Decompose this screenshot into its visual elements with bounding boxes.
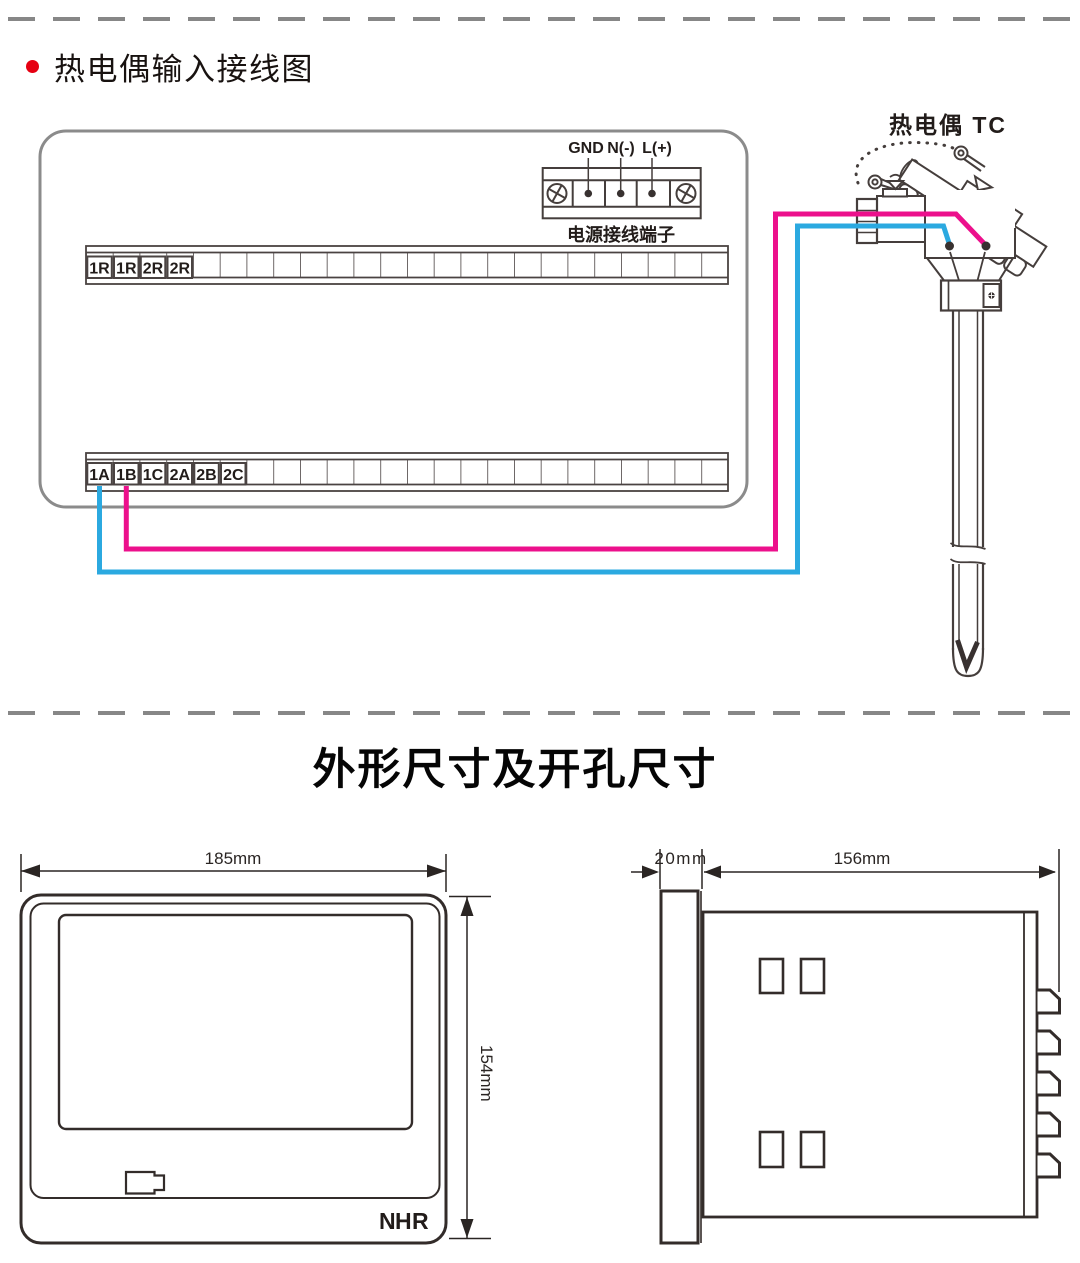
mounting-claws	[1038, 990, 1060, 1177]
nhr-logo: N H R	[379, 1208, 429, 1234]
upper-strip-label: 1R	[89, 261, 110, 278]
logo-letter-h: H	[395, 1208, 411, 1234]
side-view-drawing: 20mm 156mm	[600, 840, 1080, 1263]
mounting-claw	[1038, 1113, 1060, 1136]
device-body	[703, 912, 1037, 1217]
junction-mark	[958, 640, 978, 667]
terminal-dot-gnd	[585, 190, 593, 198]
terminal-dot-l	[648, 190, 656, 198]
wiring-diagram: GND N(-) L(+) 电源接线端子 1R 1R 2R 2R	[0, 95, 1080, 695]
power-terminal-block	[543, 158, 701, 218]
logo-letter-n: N	[379, 1208, 395, 1234]
lower-strip-label: 2B	[196, 467, 216, 484]
lower-strip-label: 1C	[143, 467, 164, 484]
red-bullet-icon	[26, 60, 39, 73]
mounting-claw	[1038, 1154, 1060, 1177]
front-view-drawing: 185mm N H R 154mm	[0, 840, 540, 1263]
sensor-label: 热电偶 TC	[889, 112, 1007, 138]
document-page: 热电偶输入接线图	[0, 0, 1080, 1263]
power-label-gnd: GND	[568, 140, 604, 157]
upper-strip-label: 2R	[143, 261, 164, 278]
dimension-body-depth-label: 156mm	[834, 849, 891, 868]
hex-nut	[857, 199, 877, 243]
probe-break	[951, 543, 986, 549]
side-device	[661, 891, 1060, 1243]
lower-strip-label: 1B	[116, 467, 136, 484]
eyelet-screw-icon	[955, 147, 986, 172]
lower-strip-label: 1A	[89, 467, 110, 484]
probe-break	[951, 559, 986, 564]
power-label-n: N(-)	[607, 140, 635, 157]
front-case	[21, 895, 446, 1243]
section-title-dimensions: 外形尺寸及开孔尺寸	[0, 735, 1030, 797]
upper-strip-label: 2R	[170, 261, 191, 278]
lower-strip-label: 2A	[170, 467, 191, 484]
dashed-divider-top	[8, 17, 1072, 21]
dimension-height-label: 154mm	[477, 1045, 496, 1102]
section-title-wiring: 热电偶输入接线图	[26, 44, 314, 89]
front-panel-flange	[661, 891, 698, 1243]
thermocouple-sensor	[856, 141, 1057, 676]
logo-letter-r: R	[412, 1208, 429, 1234]
mounting-claw	[1038, 1072, 1060, 1095]
dimension-width-label: 185mm	[205, 849, 262, 868]
dimension-panel-depth-label: 20mm	[654, 849, 707, 868]
power-terminal-caption: 电源接线端子	[567, 224, 675, 245]
power-label-l: L(+)	[642, 140, 672, 157]
lower-strip-label: 2C	[223, 467, 244, 484]
wire-terminal-dot	[945, 242, 954, 251]
upper-strip-label: 1R	[116, 261, 137, 278]
mounting-claw	[1038, 1031, 1060, 1054]
section-title-wiring-text: 热电偶输入接线图	[54, 44, 314, 89]
mounting-claw	[1038, 990, 1060, 1013]
dashed-divider-middle	[8, 711, 1072, 715]
wire-terminal-dot	[982, 242, 991, 251]
usb-port	[126, 1172, 164, 1194]
terminal-dot-n	[617, 190, 625, 198]
